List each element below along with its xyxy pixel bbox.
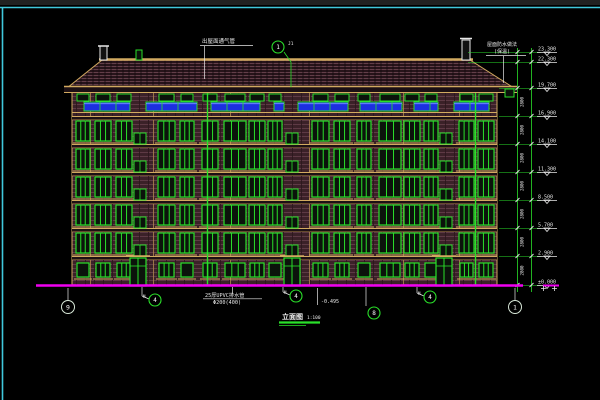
window: [249, 177, 265, 197]
window: [268, 121, 282, 141]
window: [116, 149, 132, 169]
ground-window: [159, 263, 174, 277]
window: [459, 177, 474, 197]
elevation-drawing: 23.30022.30019.70016.90014.10011.3008.50…: [0, 0, 600, 400]
attic-window: [335, 94, 349, 101]
window: [202, 121, 218, 141]
window: [249, 149, 265, 169]
window: [76, 233, 90, 253]
window: [478, 121, 494, 141]
level-label: 22.300: [538, 57, 556, 63]
window: [158, 149, 175, 169]
attic-window: [250, 94, 264, 101]
window: [95, 149, 111, 169]
axis-bubble-label: 9: [66, 303, 70, 311]
window: [95, 233, 111, 253]
window: [116, 121, 132, 141]
attic-window: [313, 94, 328, 101]
drain-note-line1: 25厚UPVC排水管: [205, 291, 245, 299]
window: [459, 233, 474, 253]
level-label: 11.300: [538, 167, 556, 173]
window: [312, 177, 329, 197]
window: [334, 121, 350, 141]
roof-note-line1: 屋面防水做法: [487, 41, 517, 48]
window: [424, 149, 438, 169]
level-label: 2.900: [538, 251, 553, 257]
roof-stack: [462, 40, 470, 60]
window: [404, 149, 420, 169]
ground-window: [269, 263, 281, 277]
window: [379, 205, 401, 225]
attic-window: [425, 94, 437, 101]
cad-model-space[interactable]: 23.30022.30019.70016.90014.10011.3008.50…: [0, 0, 600, 400]
ground-window: [181, 263, 193, 277]
window: [424, 177, 438, 197]
window: [379, 177, 401, 197]
window: [357, 233, 371, 253]
window: [357, 149, 371, 169]
window: [379, 121, 401, 141]
window: [268, 177, 282, 197]
story-dim-text: 2800: [520, 265, 525, 276]
window: [334, 149, 350, 169]
window: [404, 233, 420, 253]
detail-bubble-label: 4: [153, 297, 157, 304]
story-dim-text: 2800: [520, 96, 525, 107]
detail-bubble-label: 8: [372, 310, 376, 317]
window: [424, 233, 438, 253]
window: [116, 233, 132, 253]
story-dim-text: 2800: [520, 208, 525, 219]
window: [95, 205, 111, 225]
window: [404, 205, 420, 225]
window: [312, 149, 329, 169]
ground-window: [405, 263, 419, 277]
ground-window: [225, 263, 245, 277]
window: [357, 205, 371, 225]
attic-window: [117, 94, 131, 101]
window: [268, 233, 282, 253]
window: [357, 121, 371, 141]
window: [202, 205, 218, 225]
detail-bubble-tag: M: [284, 290, 287, 295]
roof: [67, 60, 514, 88]
ground-window: [203, 263, 217, 277]
window: [116, 205, 132, 225]
window: [76, 177, 90, 197]
window: [478, 177, 494, 197]
ground-window: [96, 263, 110, 277]
window: [180, 205, 194, 225]
window: [334, 177, 350, 197]
attic-window: [77, 94, 89, 101]
story-dim-text: 2800: [520, 124, 525, 135]
attic-window: [405, 94, 419, 101]
gutter-head: [505, 89, 514, 97]
story-dim-text: 2800: [520, 236, 525, 247]
window: [478, 205, 494, 225]
window: [312, 205, 329, 225]
attic-window: [203, 94, 217, 101]
ground-window: [460, 263, 473, 277]
ground-window: [250, 263, 264, 277]
level-label: 16.900: [538, 111, 556, 117]
story-dim-text: 2800: [520, 180, 525, 191]
window: [357, 177, 371, 197]
window: [379, 149, 401, 169]
window: [478, 149, 494, 169]
window-top-bar: [0, 0, 600, 5]
attic-window: [460, 94, 473, 101]
window: [202, 149, 218, 169]
ground-window: [479, 263, 493, 277]
attic-window: [479, 94, 493, 101]
window: [95, 121, 111, 141]
window: [180, 149, 194, 169]
roof-vent-white: [100, 46, 107, 60]
window: [224, 177, 246, 197]
window: [224, 233, 246, 253]
window: [180, 121, 194, 141]
window: [334, 205, 350, 225]
window: [180, 177, 194, 197]
window: [424, 205, 438, 225]
grade-note: -0.495: [321, 299, 339, 305]
window: [202, 233, 218, 253]
roof-vent-note: 出屋面通气管: [202, 37, 236, 45]
window: [459, 121, 474, 141]
level-label: 5.700: [538, 223, 553, 229]
detail-bubble-label: 4: [294, 293, 298, 300]
detail-bubble-tag: M: [418, 291, 421, 296]
ground-window: [77, 263, 89, 277]
level-label: 23.300: [538, 47, 556, 53]
window: [478, 233, 494, 253]
window: [249, 205, 265, 225]
window: [224, 149, 246, 169]
window: [249, 121, 265, 141]
attic-window: [269, 94, 281, 101]
window: [158, 177, 175, 197]
level-label: 8.500: [538, 195, 553, 201]
window: [379, 233, 401, 253]
detail-bubble-label: 1: [276, 44, 280, 51]
window: [76, 205, 90, 225]
ground-window: [358, 263, 370, 277]
window: [459, 149, 474, 169]
window: [404, 177, 420, 197]
window: [249, 233, 265, 253]
window: [312, 121, 329, 141]
window: [180, 233, 194, 253]
window: [158, 205, 175, 225]
drain-note-line2: Φ200(400): [213, 300, 241, 306]
window: [224, 121, 246, 141]
drawing-scale: 1:100: [307, 315, 321, 321]
window: [116, 177, 132, 197]
window: [76, 149, 90, 169]
ground-window: [335, 263, 349, 277]
level-label: 19.700: [538, 83, 556, 89]
ground-window: [425, 263, 437, 277]
window: [312, 233, 329, 253]
detail-bubble-tag: M: [143, 294, 146, 299]
detail-tag-side-label: J1: [288, 41, 294, 47]
window: [268, 149, 282, 169]
attic-window: [358, 94, 370, 101]
roof-vent-green: [136, 50, 142, 60]
window: [76, 121, 90, 141]
building-facade: [64, 39, 517, 287]
ground-window: [380, 263, 400, 277]
detail-bubble-label: 4: [428, 294, 432, 301]
drawing-title: 立面图: [282, 312, 303, 321]
window: [202, 177, 218, 197]
attic-window: [159, 94, 174, 101]
attic-window: [225, 94, 245, 101]
axis-bubble-label: 1: [513, 303, 517, 311]
window: [95, 177, 111, 197]
attic-window: [96, 94, 110, 101]
story-dim-text: 2800: [520, 152, 525, 163]
window: [404, 121, 420, 141]
ground-window: [117, 263, 131, 277]
window: [158, 121, 175, 141]
window: [158, 233, 175, 253]
window: [424, 121, 438, 141]
window: [334, 233, 350, 253]
level-label: 14.100: [538, 139, 556, 145]
roof-note-line2: (保温): [494, 48, 510, 55]
ground-window: [313, 263, 328, 277]
window: [268, 205, 282, 225]
window: [224, 205, 246, 225]
attic-window: [380, 94, 400, 101]
attic-window: [181, 94, 193, 101]
window: [459, 205, 474, 225]
